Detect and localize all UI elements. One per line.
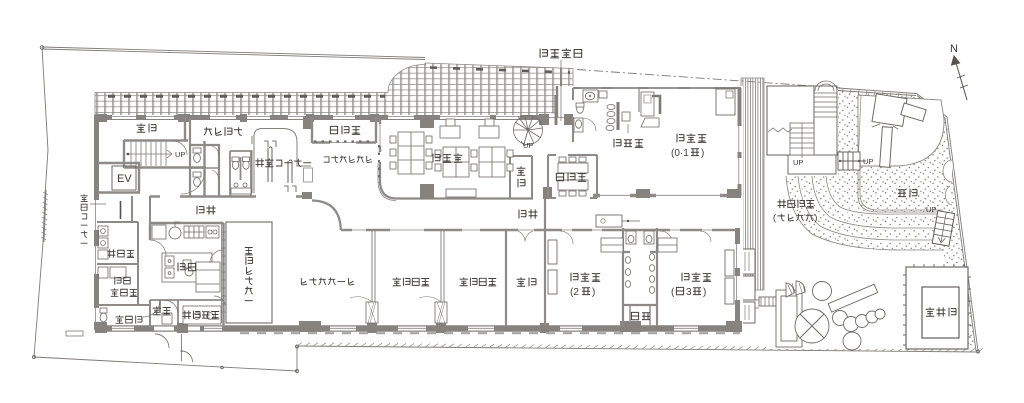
svg-text:UP: UP (863, 157, 873, 166)
svg-text:(2: (2 (570, 287, 579, 298)
svg-text:(0·1: (0·1 (671, 148, 689, 159)
svg-text:EV: EV (117, 173, 132, 185)
svg-text:): ) (592, 287, 595, 298)
svg-text:): ) (703, 287, 706, 298)
svg-text:): ) (701, 148, 704, 159)
svg-text:UP: UP (793, 158, 803, 167)
svg-text:N: N (950, 43, 958, 55)
svg-text:UP: UP (523, 141, 533, 150)
svg-text:UP: UP (175, 150, 185, 159)
svg-text:): ) (814, 213, 817, 223)
svg-text:UP: UP (926, 205, 936, 214)
svg-text:(: ( (773, 213, 776, 223)
svg-text:3: 3 (686, 287, 692, 298)
